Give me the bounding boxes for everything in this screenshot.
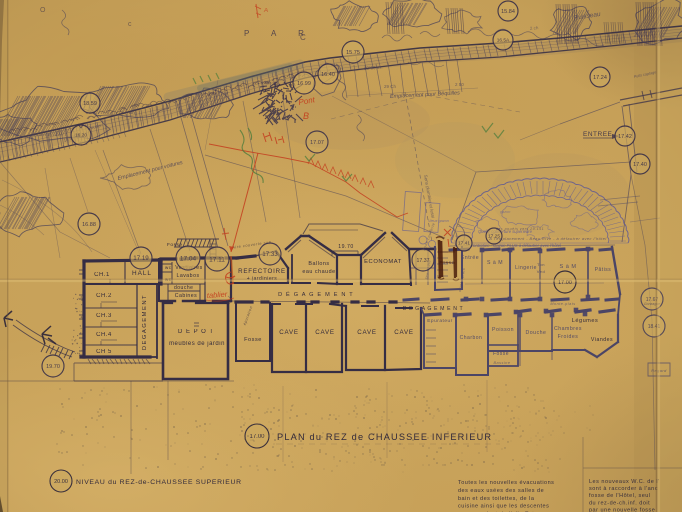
svg-text:CAVE: CAVE bbox=[394, 329, 414, 336]
svg-text:CAVE: CAVE bbox=[357, 329, 377, 336]
svg-text:16.20: 16.20 bbox=[75, 133, 87, 139]
svg-text:À l'emplacement - Beau Rive -: À l'emplacement - Beau Rive - à défautre… bbox=[488, 237, 607, 241]
svg-text:wc: wc bbox=[165, 265, 172, 270]
svg-text:C: C bbox=[300, 33, 306, 42]
svg-text:Cabines: Cabines bbox=[175, 293, 198, 299]
svg-text:Bassine: Bassine bbox=[493, 361, 510, 365]
svg-text:2 ch: 2 ch bbox=[530, 25, 539, 31]
svg-text:29 Ch: 29 Ch bbox=[384, 84, 397, 89]
svg-text:Pâtiss: Pâtiss bbox=[595, 267, 612, 273]
svg-text:c: c bbox=[128, 21, 132, 28]
svg-text:tablier: tablier bbox=[207, 290, 229, 300]
svg-text:17.00: 17.00 bbox=[249, 434, 265, 440]
svg-text:19.70: 19.70 bbox=[46, 364, 60, 370]
svg-text:Poisson: Poisson bbox=[492, 327, 514, 333]
svg-text:REFECTOIRE: REFECTOIRE bbox=[238, 268, 286, 275]
svg-text:20.00: 20.00 bbox=[54, 479, 68, 485]
svg-text:CAVE: CAVE bbox=[279, 329, 299, 336]
svg-text:Froides: Froides bbox=[558, 334, 579, 340]
svg-text:Charbon: Charbon bbox=[460, 335, 483, 341]
svg-text:par une nouvelle fosse: par une nouvelle fosse bbox=[589, 507, 655, 512]
svg-text:CAVE: CAVE bbox=[315, 329, 335, 336]
svg-text:15.84: 15.84 bbox=[501, 9, 515, 15]
svg-text:ENTREE: ENTREE bbox=[583, 131, 613, 138]
svg-text:Les nouveaux W.C. de l': Les nouveaux W.C. de l' bbox=[589, 479, 660, 485]
svg-text:ECONOMAT: ECONOMAT bbox=[364, 259, 402, 265]
svg-text:Chambres: Chambres bbox=[554, 326, 582, 332]
svg-text:Ballons: Ballons bbox=[308, 261, 329, 267]
svg-text:CH 5: CH 5 bbox=[96, 349, 112, 355]
svg-text:NIVEAU du REZ-de-CHAUSSEE: NIVEAU du REZ-de-CHAUSSEE SUPERIEUR bbox=[76, 479, 242, 486]
svg-text:16.88: 16.88 bbox=[82, 222, 96, 228]
svg-text:2 50: 2 50 bbox=[455, 82, 464, 87]
svg-text:17.24: 17.24 bbox=[593, 75, 607, 81]
svg-text:meubles de jardin: meubles de jardin bbox=[169, 341, 225, 347]
svg-text:15.75: 15.75 bbox=[346, 50, 360, 56]
svg-text:DEGAGEMENT: DEGAGEMENT bbox=[142, 294, 148, 350]
svg-text:Ved: Ved bbox=[537, 269, 545, 274]
svg-text:des eaux usées des salles de: des eaux usées des salles de bbox=[458, 488, 544, 494]
svg-text:Légumes: Légumes bbox=[572, 318, 599, 324]
svg-text:bain et des toilettes, de la: bain et des toilettes, de la bbox=[458, 496, 535, 502]
svg-text:Douche: Douche bbox=[526, 330, 547, 336]
svg-text:D E G A G E M E N T: D E G A G E M E N T bbox=[403, 306, 464, 312]
svg-text:Entrée: Entrée bbox=[461, 255, 479, 261]
svg-text:HALL: HALL bbox=[132, 270, 152, 277]
svg-text:16.5A: 16.5A bbox=[497, 38, 510, 44]
svg-text:Ton: Ton bbox=[537, 262, 545, 267]
svg-text:douche: douche bbox=[174, 285, 193, 291]
svg-text:fosse de l'Hôtel, seul: fosse de l'Hôtel, seul bbox=[589, 493, 651, 499]
svg-text:16.40: 16.40 bbox=[321, 72, 335, 78]
svg-text:16.99: 16.99 bbox=[297, 81, 311, 87]
svg-text:17.19: 17.19 bbox=[133, 255, 149, 262]
svg-text:D É G A G E M E N T: D É G A G E M E N T bbox=[278, 291, 354, 298]
svg-text:cuisine ainsi que les descente: cuisine ainsi que les descentes bbox=[458, 504, 549, 510]
svg-text:17.42: 17.42 bbox=[618, 134, 632, 140]
svg-text:Fosse: Fosse bbox=[244, 337, 262, 343]
svg-text:B: B bbox=[303, 111, 309, 121]
svg-text:PLAN du REZ de CHAUSSEE I: PLAN du REZ de CHAUSSEE INFERIEUR bbox=[277, 432, 492, 442]
svg-text:CH.4: CH.4 bbox=[96, 332, 112, 338]
svg-text:Viandes: Viandes bbox=[591, 337, 613, 343]
svg-text:Lavabos: Lavabos bbox=[176, 273, 199, 279]
svg-text:18.59: 18.59 bbox=[83, 101, 97, 107]
svg-text:du rez-de-ch.inf. doit: du rez-de-ch.inf. doit bbox=[589, 500, 650, 506]
svg-text:des pouêts vers 29.151: des pouêts vers 29.151 bbox=[496, 227, 544, 231]
svg-text:17.40: 17.40 bbox=[633, 162, 647, 168]
svg-text:CH.3: CH.3 bbox=[96, 313, 112, 319]
svg-text:D E P O T: D E P O T bbox=[178, 329, 214, 335]
svg-text:19.70: 19.70 bbox=[338, 244, 353, 250]
svg-text:O: O bbox=[40, 7, 46, 14]
svg-text:Monte-plats: Monte-plats bbox=[550, 302, 575, 306]
svg-text:eau chaude: eau chaude bbox=[302, 269, 335, 275]
svg-text:17.04: 17.04 bbox=[180, 255, 197, 262]
svg-text:Epurateur: Epurateur bbox=[427, 318, 453, 324]
svg-text:CH.2: CH.2 bbox=[96, 293, 112, 299]
svg-text:S à M: S à M bbox=[559, 264, 576, 270]
svg-text:17.41: 17.41 bbox=[458, 241, 470, 247]
svg-text:Toutes les nouvelles évacuatio: Toutes les nouvelles évacuations bbox=[458, 480, 554, 486]
svg-text:CH.1: CH.1 bbox=[94, 272, 110, 278]
svg-text:A: A bbox=[263, 8, 268, 14]
svg-text:17.11: 17.11 bbox=[209, 256, 225, 263]
svg-text:17.33: 17.33 bbox=[262, 251, 278, 258]
svg-text:S à M: S à M bbox=[487, 260, 503, 266]
svg-text:sont à raccorder à l'anc: sont à raccorder à l'anc bbox=[589, 486, 658, 492]
svg-text:Lingerie: Lingerie bbox=[515, 265, 537, 271]
